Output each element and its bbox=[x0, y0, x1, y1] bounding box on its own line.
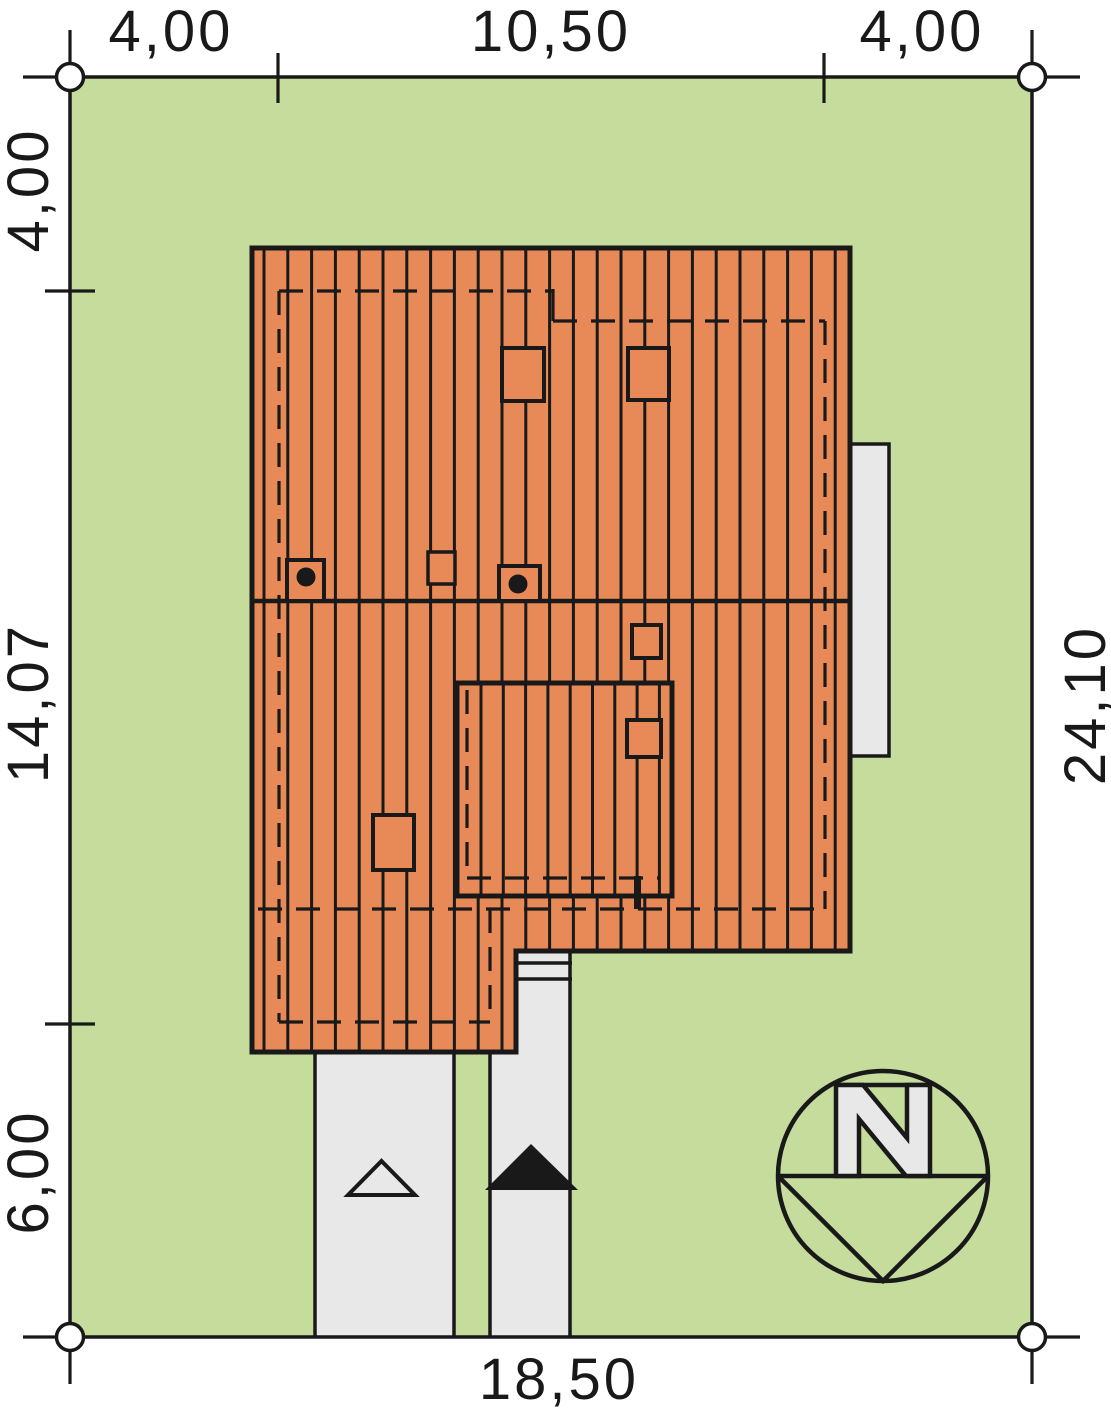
svg-text:6,00: 6,00 bbox=[0, 1110, 61, 1235]
svg-text:10,50: 10,50 bbox=[471, 0, 631, 64]
svg-text:18,50: 18,50 bbox=[479, 1347, 639, 1409]
svg-text:24,10: 24,10 bbox=[1053, 625, 1111, 785]
svg-text:4,00: 4,00 bbox=[109, 0, 234, 64]
svg-text:4,00: 4,00 bbox=[0, 128, 61, 253]
svg-text:4,00: 4,00 bbox=[860, 0, 985, 64]
svg-text:14,07: 14,07 bbox=[0, 623, 61, 783]
